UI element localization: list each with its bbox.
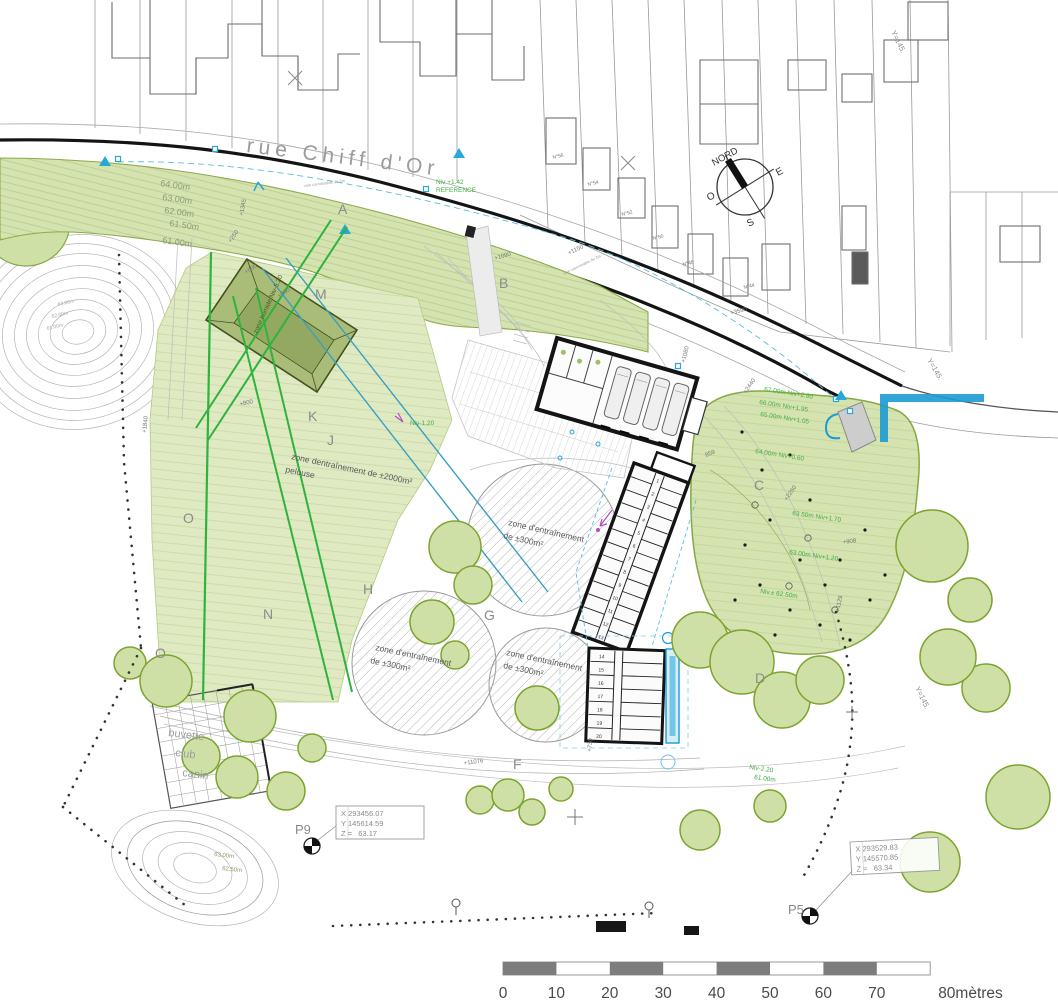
zone-letter: O xyxy=(155,645,166,661)
scale-tick-label: 30 xyxy=(655,985,673,1002)
tree xyxy=(948,578,992,622)
survey-coord-z: Z = 63.34 xyxy=(856,863,892,874)
scale-tick-label: 80mètres xyxy=(938,985,1003,1002)
scale-tick-label: 10 xyxy=(548,985,566,1002)
tree xyxy=(466,786,494,814)
zone-letter: C xyxy=(754,477,764,493)
zone-letter: B xyxy=(499,275,508,291)
survey-marker-p5 xyxy=(802,868,855,924)
scale-tick-label: 0 xyxy=(499,985,508,1002)
compass-label-e: E xyxy=(774,166,785,179)
scale-labels: 01020304050607080mètres xyxy=(499,985,1003,1002)
grid-coordinate: Y=145. xyxy=(913,685,932,711)
kennel-cell-number: 15 xyxy=(598,667,604,673)
grid-coordinate: Y=145. xyxy=(889,29,908,55)
level-label: Niv-1.20 xyxy=(410,420,435,427)
house-number: N°50 xyxy=(652,233,665,242)
tree xyxy=(410,600,454,644)
level-label: Niv-2.20 xyxy=(749,764,774,774)
house-number: N°52 xyxy=(621,209,634,218)
zone-letter: N xyxy=(263,606,273,622)
tree xyxy=(492,779,524,811)
site-plan-page: 12345678910111213 14151617181920 xyxy=(0,0,1058,1007)
zone-letter: K xyxy=(308,408,318,424)
tree xyxy=(680,810,720,850)
survey-coord-x: X 293456.07 xyxy=(341,809,384,818)
tree xyxy=(216,756,258,798)
tree xyxy=(920,629,976,685)
scale-tick-label: 40 xyxy=(708,985,726,1002)
dimension-label: +730 xyxy=(587,737,594,752)
buvette-label: buvette xyxy=(168,727,205,743)
contour-label: 63.00m xyxy=(214,852,235,860)
compass-label-o: O xyxy=(705,190,717,203)
contour-label: 62.00m xyxy=(51,311,69,320)
compass-label-nord: NORD xyxy=(710,145,740,168)
kennel-cell-number: 16 xyxy=(598,681,604,687)
tree xyxy=(429,521,481,573)
zone-letter: G xyxy=(484,607,495,623)
level-label: 61.00m xyxy=(754,774,776,784)
kennel-cell-number: 19 xyxy=(596,721,602,727)
contour-mound-bottom-left xyxy=(97,790,294,946)
zone-letter: J xyxy=(327,432,334,448)
house-number: N°56 xyxy=(552,152,565,161)
contour-label: 61.00m xyxy=(46,323,64,332)
tree xyxy=(298,734,326,762)
grid-coordinate: Y=145. xyxy=(925,357,945,382)
zone-letter: O xyxy=(183,510,194,526)
bottom-objects xyxy=(452,899,699,935)
road-note: voie carrossable de 2m xyxy=(562,253,602,276)
tree xyxy=(140,655,192,707)
road-note: voie carrossable de 2m xyxy=(304,178,346,188)
kennel-block-b: 14151617181920 xyxy=(586,648,665,744)
tree xyxy=(519,799,545,825)
scale-tick-label: 50 xyxy=(761,985,779,1002)
kennel-cell-number: 18 xyxy=(597,707,603,713)
buvette-label: canin xyxy=(182,767,210,782)
house-number: N°54 xyxy=(587,179,600,188)
buvette-label: club xyxy=(175,747,196,761)
zone-letter: D xyxy=(755,670,765,686)
tree xyxy=(224,690,276,742)
dark-shed xyxy=(852,252,868,284)
reference-level: Niv +1.42 xyxy=(436,179,464,186)
dimension-label: +11076 xyxy=(463,758,484,767)
tree xyxy=(549,777,573,801)
house-number: N°44 xyxy=(743,282,756,291)
survey-point-id: P5 xyxy=(788,902,804,917)
tree xyxy=(754,790,786,822)
dimension-label: +1150 xyxy=(567,244,585,257)
scale-tick-label: 70 xyxy=(868,985,886,1002)
survey-coord-y: Y 145614.59 xyxy=(341,819,383,828)
tree xyxy=(267,772,305,810)
tree xyxy=(454,566,492,604)
reference-level: REFERENCE xyxy=(436,187,477,194)
tree xyxy=(515,686,559,730)
scale-bar xyxy=(503,962,930,975)
parking-area xyxy=(452,225,642,478)
dimension-label: +1080 xyxy=(681,345,691,363)
survey-coord-z: Z = 63.17 xyxy=(341,829,377,838)
survey-point-id: P9 xyxy=(295,822,311,837)
north-needle xyxy=(725,158,748,189)
zone-letter: F xyxy=(513,756,522,772)
scale-tick-label: 60 xyxy=(815,985,833,1002)
tree xyxy=(796,656,844,704)
house-number: N°48 xyxy=(682,259,695,268)
kennel-cell-number: 20 xyxy=(596,734,602,740)
contour-label: 63.00m xyxy=(57,299,75,308)
contour-label: 62.50m xyxy=(222,866,243,874)
dimension-label: +1840 xyxy=(142,415,150,433)
kennel-cell-number: 14 xyxy=(599,654,605,660)
zone-letter: A xyxy=(338,201,348,217)
tree xyxy=(986,765,1050,829)
zone-letter: M xyxy=(315,286,327,302)
site-plan-canvas: 12345678910111213 14151617181920 xyxy=(0,0,1058,1007)
compass-label-s: S xyxy=(745,217,756,230)
zone-letter: H xyxy=(363,581,373,597)
kennel-cell-number: 17 xyxy=(597,694,603,700)
scale-tick-label: 20 xyxy=(601,985,619,1002)
coordinate-box-p5: X 293529.83Y 145570.85Z = 63.34 xyxy=(850,837,940,875)
tree xyxy=(896,510,968,582)
